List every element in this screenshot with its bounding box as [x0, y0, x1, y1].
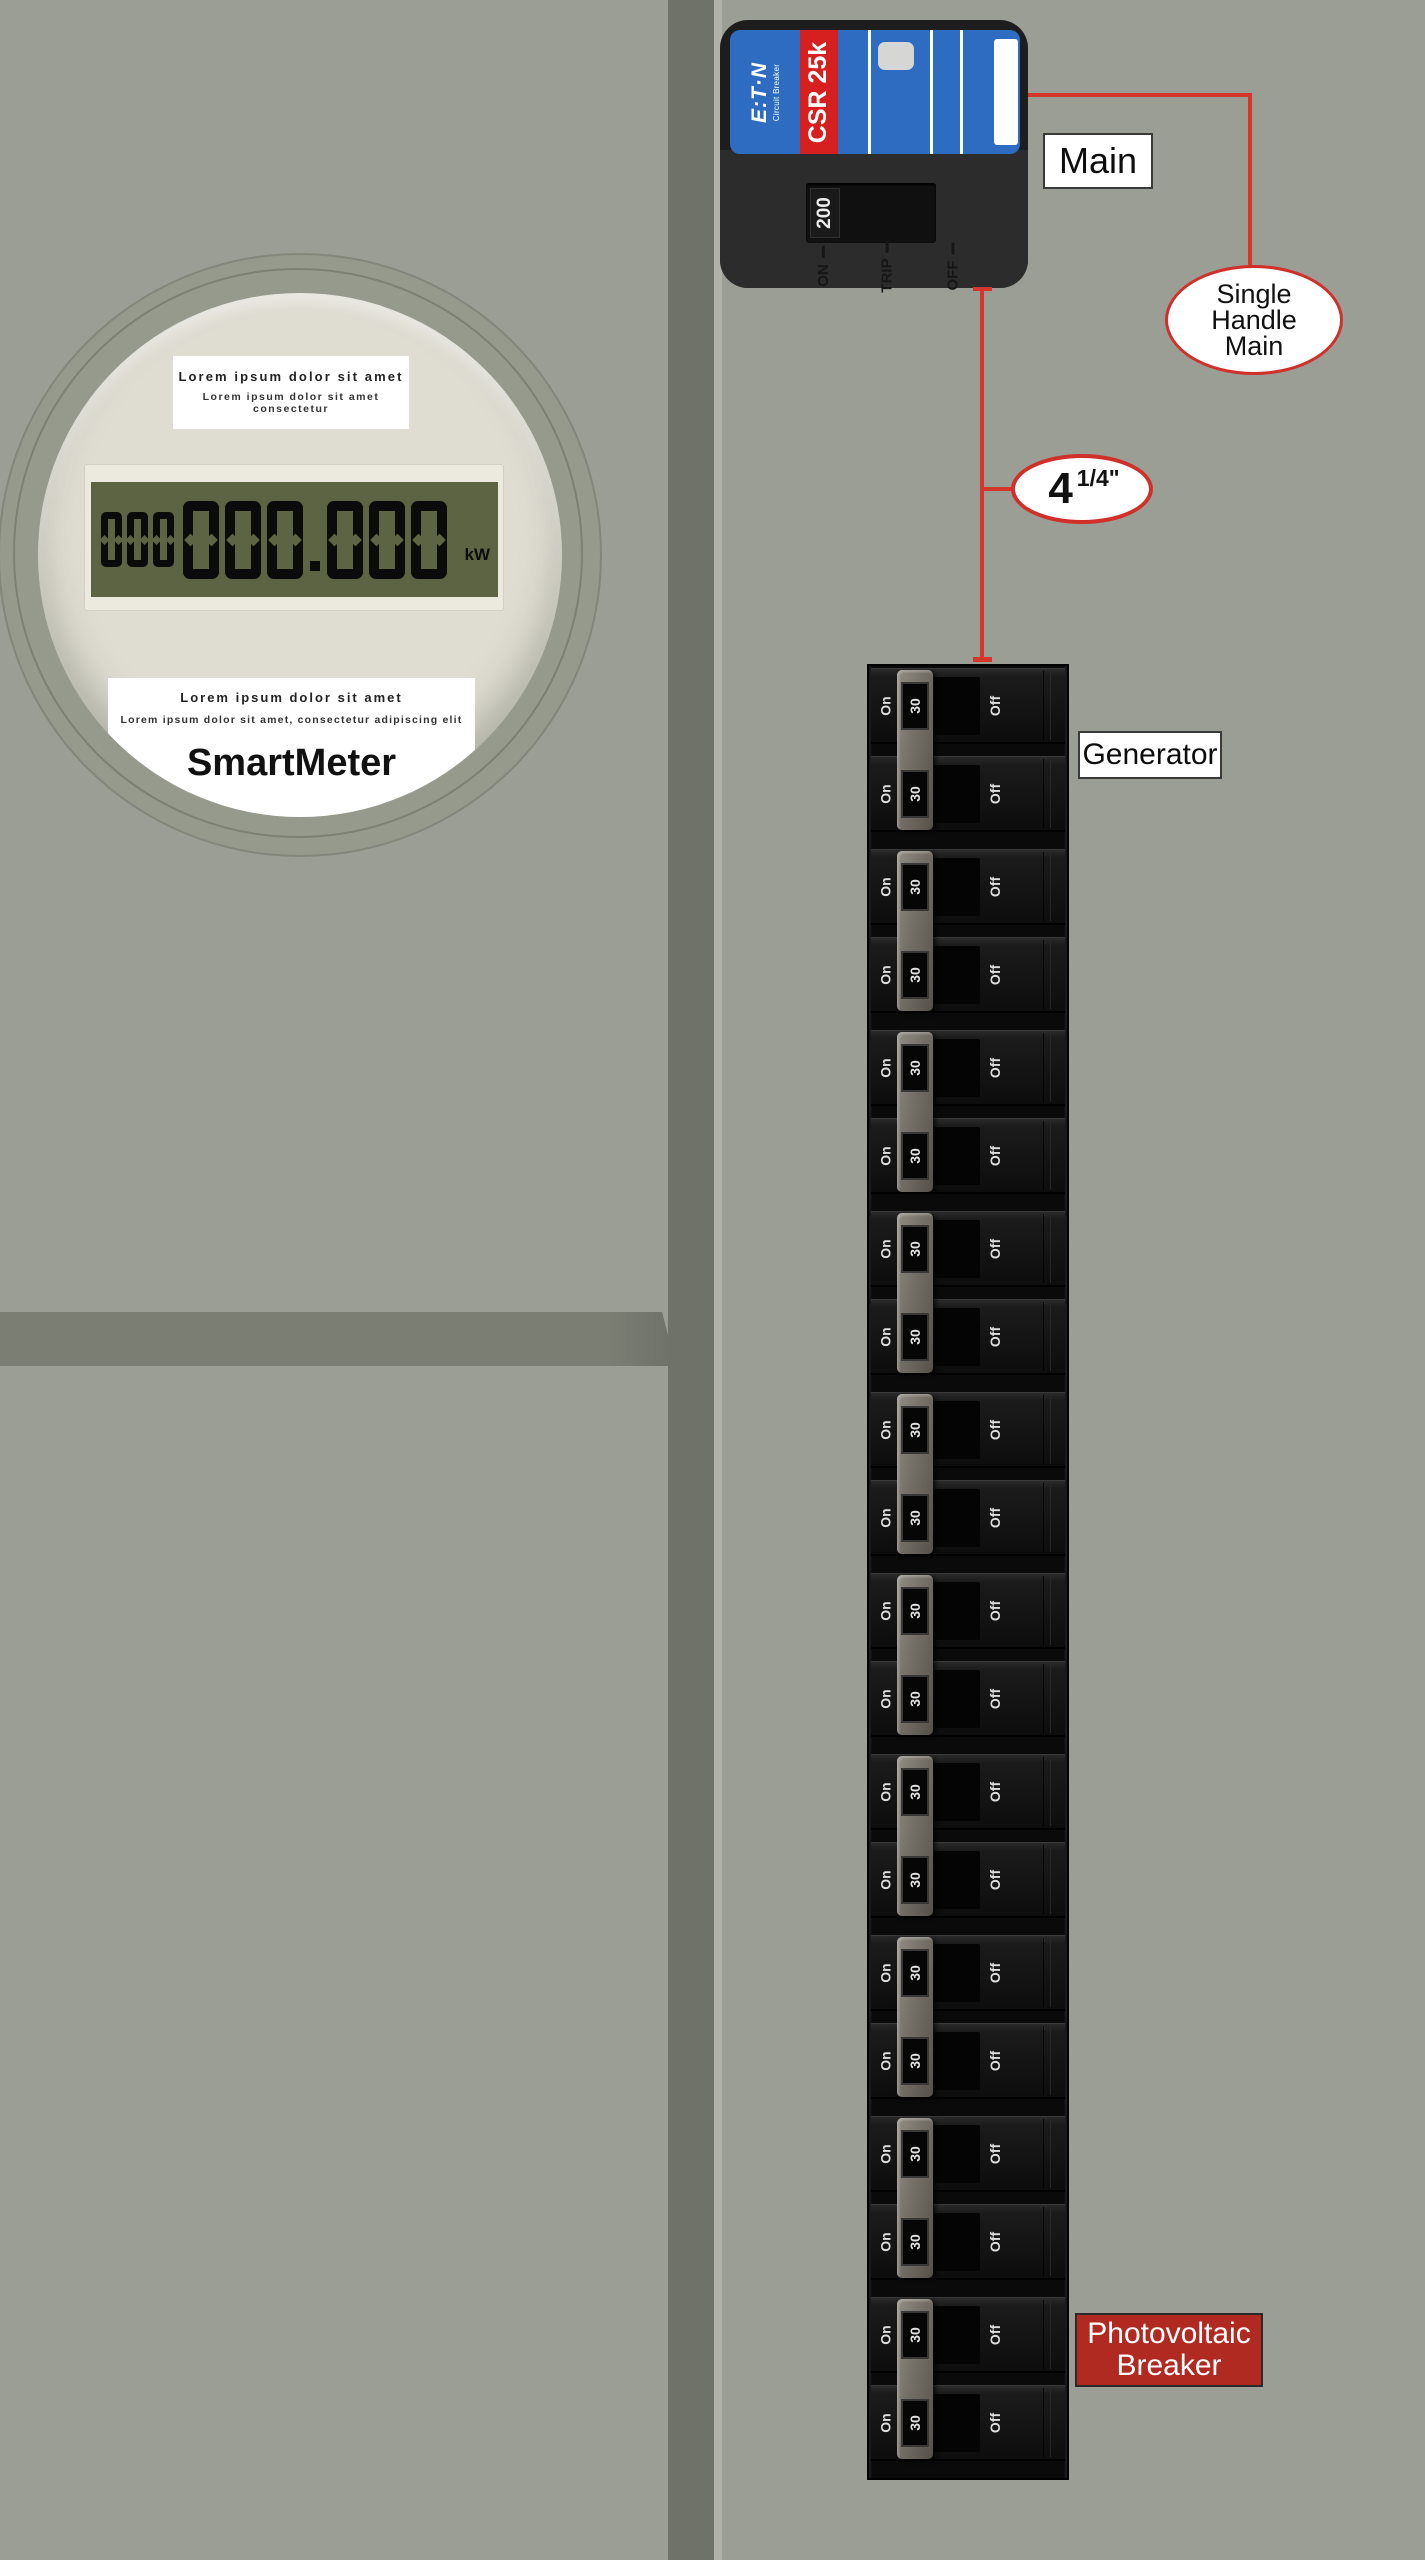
meter-face: Lorem ipsum dolor sit amet Lorem ipsum d… — [38, 293, 562, 817]
meter-bottom-card: Lorem ipsum dolor sit amet Lorem ipsum d… — [108, 678, 475, 817]
door-edge-band — [0, 1312, 676, 1366]
rating-window: 200 — [810, 188, 840, 238]
breaker-off-label: Off — [983, 1480, 1007, 1556]
breaker-off-label: Off — [983, 1118, 1007, 1194]
lcd-zero — [267, 501, 303, 579]
position-tick — [886, 240, 889, 252]
breaker-amp-window: 30 — [901, 2037, 929, 2085]
main-callout: Main — [1043, 133, 1153, 189]
breaker-on-label: On — [874, 668, 898, 744]
breaker-on-label: On — [874, 1480, 898, 1556]
breaker-on-label: On — [874, 2297, 898, 2373]
lcd-main-digits — [183, 501, 447, 579]
breaker-off-label: Off — [983, 1392, 1007, 1468]
breaker-off-label: Off — [983, 2297, 1007, 2373]
lcd-small-zero — [127, 512, 148, 567]
breaker-rocker — [934, 2394, 980, 2452]
lcd-unit: kW — [465, 545, 491, 565]
breaker-off-label: Off — [983, 2385, 1007, 2461]
meter-lcd-screen: kW — [91, 482, 498, 597]
breaker-rocker — [934, 858, 980, 916]
breaker-off-label: Off — [983, 668, 1007, 744]
breaker-on-label: On — [874, 2116, 898, 2192]
eaton-brand: E:T·N Circuit Breaker — [730, 30, 798, 154]
breaker-amp-window: 30 — [901, 1768, 929, 1816]
service-panel-scene: Lorem ipsum dolor sit amet Lorem ipsum d… — [0, 0, 1425, 2560]
breaker-group: OnOffOnOff3030 — [871, 1573, 1065, 1737]
breaker-group: OnOffOnOff3030 — [871, 668, 1065, 832]
breaker-rocker — [934, 1944, 980, 2002]
breaker-on-label: On — [874, 2023, 898, 2099]
main-breaker-label: E:T·N Circuit Breaker CSR 25k — [730, 30, 1020, 154]
dimension-connector — [984, 487, 1014, 491]
eaton-logo: E:T·N — [748, 62, 772, 123]
breaker-on-label: On — [874, 1842, 898, 1918]
meter-top-card: Lorem ipsum dolor sit amet Lorem ipsum d… — [173, 356, 409, 429]
meter-bottom-subtitle: Lorem ipsum dolor sit amet, consectetur … — [108, 714, 475, 726]
breaker-off-label: Off — [983, 2023, 1007, 2099]
breaker-off-label: Off — [983, 2116, 1007, 2192]
breaker-off-label: Off — [983, 1573, 1007, 1649]
meter-top-title: Lorem ipsum dolor sit amet — [173, 369, 409, 384]
shm-line1: Single — [1216, 281, 1291, 307]
label-divider-line — [868, 30, 871, 154]
lcd-small-zero — [153, 512, 174, 567]
breaker-amp-window: 30 — [901, 2218, 929, 2266]
position-tick — [822, 246, 825, 258]
breaker-rocker — [934, 2125, 980, 2183]
breaker-off-label: Off — [983, 1299, 1007, 1375]
breaker-off-label: Off — [983, 1754, 1007, 1830]
breaker-on-label: On — [874, 2204, 898, 2280]
panel-seam-strip — [668, 0, 714, 2560]
breaker-amp-window: 30 — [901, 1675, 929, 1723]
breaker-amp-window: 30 — [901, 2311, 929, 2359]
breaker-amp-window: 30 — [901, 1406, 929, 1454]
breaker-off-label: Off — [983, 756, 1007, 832]
dimension-line — [980, 289, 984, 660]
breaker-rocker — [934, 2213, 980, 2271]
meter-bottom-title: Lorem ipsum dolor sit amet — [108, 690, 475, 705]
breaker-group: OnOffOnOff3030 — [871, 1392, 1065, 1556]
breaker-amp-window: 30 — [901, 2399, 929, 2447]
position-off: OFF — [938, 243, 968, 289]
main-callout-line — [1028, 93, 1250, 97]
breaker-on-label: On — [874, 849, 898, 925]
lcd-zero — [183, 501, 219, 579]
generator-callout-text: Generator — [1082, 738, 1217, 772]
breaker-rocker — [934, 677, 980, 735]
main-breaker-recess: 200 — [806, 183, 936, 243]
breaker-rocker — [934, 1582, 980, 1640]
model-stripe: CSR 25k — [800, 30, 838, 154]
meter-brand: SmartMeter — [108, 742, 475, 785]
breaker-off-label: Off — [983, 1030, 1007, 1106]
shm-line3: Main — [1225, 333, 1284, 359]
main-breaker-handle[interactable] — [878, 42, 914, 70]
breaker-panel: OnOffOnOff3030OnOffOnOff3030OnOffOnOff30… — [867, 664, 1069, 2480]
breaker-rocker — [934, 1489, 980, 1547]
breaker-on-label: On — [874, 1661, 898, 1737]
dimension-value: 4 — [1048, 464, 1072, 514]
breaker-amp-window: 30 — [901, 1132, 929, 1180]
position-tick — [952, 242, 955, 254]
breaker-amp-window: 30 — [901, 1856, 929, 1904]
breaker-off-label: Off — [983, 849, 1007, 925]
breaker-rocker — [934, 2306, 980, 2364]
rating-value: 200 — [814, 197, 836, 229]
breaker-rocker — [934, 765, 980, 823]
breaker-rocker — [934, 1851, 980, 1909]
breaker-on-label: On — [874, 1118, 898, 1194]
lcd-zero — [369, 501, 405, 579]
single-handle-main-callout: Single Handle Main — [1165, 265, 1343, 375]
breaker-on-label: On — [874, 1754, 898, 1830]
lcd-zero — [411, 501, 447, 579]
breaker-amp-window: 30 — [901, 770, 929, 818]
breaker-on-label: On — [874, 1299, 898, 1375]
breaker-rocker — [934, 1308, 980, 1366]
breaker-on-label: On — [874, 1935, 898, 2011]
breaker-group: OnOffOnOff3030 — [871, 849, 1065, 1013]
breaker-amp-window: 30 — [901, 1494, 929, 1542]
breaker-on-label: On — [874, 1392, 898, 1468]
breaker-rocker — [934, 2032, 980, 2090]
breaker-group: OnOffOnOff3030 — [871, 1211, 1065, 1375]
breaker-amp-window: 30 — [901, 682, 929, 730]
breaker-on-label: On — [874, 1573, 898, 1649]
breaker-on-label: On — [874, 1211, 898, 1287]
position-trip: TRIP — [872, 243, 902, 289]
breaker-on-label: On — [874, 1030, 898, 1106]
dimension-fraction: 1/4" — [1077, 465, 1120, 492]
breaker-rocker — [934, 946, 980, 1004]
breaker-on-label: On — [874, 937, 898, 1013]
breaker-amp-window: 30 — [901, 1044, 929, 1092]
shm-line2: Handle — [1211, 307, 1297, 333]
meter-top-subtitle: Lorem ipsum dolor sit amet consectetur — [173, 391, 409, 415]
breaker-off-label: Off — [983, 1935, 1007, 2011]
main-callout-line-vertical — [1248, 93, 1252, 267]
model-text: CSR 25k — [805, 41, 834, 142]
position-on: ON — [808, 243, 838, 289]
breaker-off-label: Off — [983, 1661, 1007, 1737]
label-divider-line — [960, 30, 963, 154]
label-white-bar — [994, 39, 1018, 145]
dimension-tick-top — [973, 287, 992, 291]
breaker-rocker — [934, 1401, 980, 1459]
lcd-small-digits — [101, 512, 174, 567]
pv-line1: Photovoltaic — [1087, 2318, 1250, 2350]
lcd-decimal-point — [310, 561, 320, 571]
breaker-off-label: Off — [983, 1842, 1007, 1918]
generator-callout: Generator — [1078, 731, 1222, 779]
breaker-amp-window: 30 — [901, 1587, 929, 1635]
breaker-rocker — [934, 1039, 980, 1097]
breaker-group: OnOffOnOff3030 — [871, 2116, 1065, 2280]
breaker-rocker — [934, 1220, 980, 1278]
breaker-group: OnOffOnOff3030 — [871, 1935, 1065, 2099]
breaker-amp-window: 30 — [901, 951, 929, 999]
breaker-amp-window: 30 — [901, 1225, 929, 1273]
lcd-small-zero — [101, 512, 122, 567]
lcd-zero — [225, 501, 261, 579]
breaker-amp-window: 30 — [901, 2130, 929, 2178]
breaker-rocker — [934, 1763, 980, 1821]
meter-lcd-bezel: kW — [84, 464, 504, 611]
breaker-rocker — [934, 1127, 980, 1185]
dimension-callout: 4 1/4" — [1011, 454, 1153, 524]
label-divider-line — [930, 30, 933, 154]
dimension-tick-bottom — [973, 657, 992, 662]
breaker-off-label: Off — [983, 2204, 1007, 2280]
breaker-on-label: On — [874, 756, 898, 832]
breaker-amp-window: 30 — [901, 1313, 929, 1361]
lcd-zero — [327, 501, 363, 579]
breaker-off-label: Off — [983, 1211, 1007, 1287]
main-callout-text: Main — [1059, 140, 1137, 182]
breaker-amp-window: 30 — [901, 1949, 929, 1997]
breaker-group: OnOffOnOff3030 — [871, 2297, 1065, 2461]
breaker-off-label: Off — [983, 937, 1007, 1013]
breaker-rocker — [934, 1670, 980, 1728]
eaton-sub: Circuit Breaker — [772, 62, 781, 123]
panel-seam-highlight — [714, 0, 722, 2560]
breaker-group: OnOffOnOff3030 — [871, 1754, 1065, 1918]
pv-line2: Breaker — [1116, 2350, 1221, 2382]
photovoltaic-callout: Photovoltaic Breaker — [1075, 2313, 1263, 2387]
breaker-amp-window: 30 — [901, 863, 929, 911]
breaker-group: OnOffOnOff3030 — [871, 1030, 1065, 1194]
breaker-on-label: On — [874, 2385, 898, 2461]
